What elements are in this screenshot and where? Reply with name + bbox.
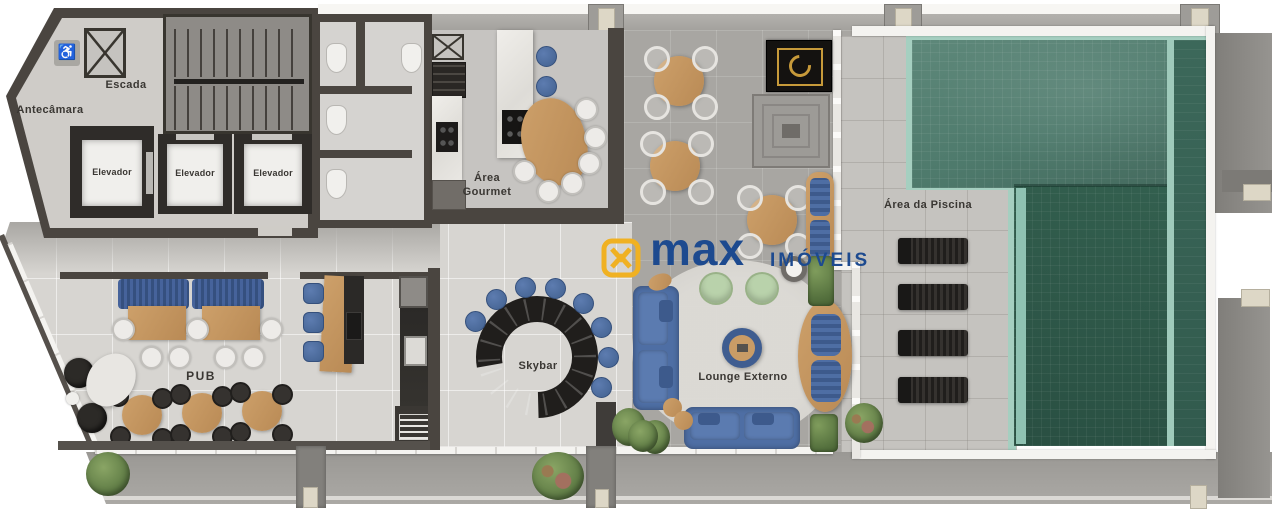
room-label-elevador-1: Elevador [70, 167, 154, 178]
pub-table-2 [202, 306, 260, 340]
room-label-elevador-3: Elevador [234, 168, 312, 179]
lounge-sofa-horizontal [684, 407, 800, 449]
tt1-chair-a [644, 46, 670, 72]
dish-rack [399, 414, 429, 440]
pool-deck-upper [841, 36, 908, 188]
bar-stool-3 [303, 341, 324, 362]
bathroom-partition-1 [318, 86, 412, 94]
room-label-pub: PUB [176, 369, 226, 384]
room-label-area-da-piscina: Área da Piscina [874, 199, 982, 213]
sofa-v-pillow-2 [659, 366, 673, 388]
pergola-frame [752, 94, 830, 168]
lounge-sofa-vertical [633, 286, 679, 410]
skybar-stool-3 [515, 277, 536, 298]
pool-water-shallow [912, 40, 1206, 188]
daybed-1-pad-a [810, 178, 830, 216]
pool-wall-bottom [852, 450, 1216, 459]
sofa-h-pillow-1 [698, 413, 720, 425]
deck-bush [845, 403, 883, 443]
kitchen-shaft-x [432, 34, 464, 60]
tt1-chair-d [692, 94, 718, 120]
pub-banquette-2 [192, 279, 264, 309]
pool-lap-lane [1174, 40, 1206, 446]
tt2-chair-d [688, 179, 714, 205]
pub-banquette-1 [118, 279, 189, 309]
gourmet-chair-5 [537, 180, 560, 203]
kitchen-wall-bottom [424, 208, 624, 224]
elevator-2-door [176, 134, 214, 140]
skybar-stool-8 [591, 377, 612, 398]
balcony-bush [532, 452, 584, 500]
gourmet-chair-1 [575, 98, 598, 121]
pub-chair-7 [260, 318, 283, 341]
oven-stack [432, 62, 466, 98]
gourmet-chair-4 [561, 172, 584, 195]
gourmet-chair-3 [578, 152, 601, 175]
bathroom-partition-3 [356, 22, 365, 88]
sofa-h-pillow-2 [752, 413, 774, 425]
shaft-x [84, 28, 126, 78]
accessibility-plate: ♿ [54, 40, 80, 66]
bottom-band-edge [66, 496, 1272, 500]
lounger-3-headrest [898, 330, 911, 356]
island-stool-2 [536, 76, 557, 97]
kitchen-shaft-brace [434, 36, 462, 58]
pool-wall-right [1206, 26, 1215, 459]
pub-rt3-chair-b [272, 384, 293, 405]
lounge-corner-bush [628, 420, 658, 452]
max-monogram-icon [601, 238, 641, 278]
coffee-machine [346, 312, 362, 340]
accessibility-icon: ♿ [58, 44, 77, 61]
pub-chair-5 [112, 318, 135, 341]
skybar-stool-4 [545, 278, 566, 299]
pub-rt3-chair-a [230, 382, 251, 403]
pub-bottom-wall [58, 441, 430, 450]
tt2-chair-a [640, 131, 666, 157]
pool-lane-divider [1167, 40, 1174, 446]
lounge-side-table-3 [674, 411, 693, 430]
stair-rail [174, 79, 304, 84]
core-door-opening [258, 226, 292, 236]
pub-rt3-chair-c [230, 422, 251, 443]
toilet-3 [327, 106, 346, 134]
bar-stool-1 [303, 283, 324, 304]
pub-side-table [66, 392, 79, 405]
room-label-skybar: Skybar [508, 360, 568, 374]
brand-logo: max IMÓVEIS [598, 226, 858, 286]
skybar-stool-7 [598, 347, 619, 368]
kitchen-partition-right [608, 28, 624, 224]
pub-table-1 [128, 306, 186, 340]
tt1-chair-b [692, 46, 718, 72]
pool-bottom-post [1190, 485, 1207, 509]
brand-suffix: IMÓVEIS [770, 250, 870, 272]
room-label-antecamara: Antecâmara [2, 104, 98, 118]
pool-wall-top [852, 26, 1214, 36]
lounge-planter-bottom [810, 414, 838, 452]
tt2-chair-b [688, 131, 714, 157]
shaft-x-brace [87, 31, 123, 75]
toilet-2 [402, 44, 421, 72]
toilet-4 [327, 170, 346, 198]
tt3-chair-a [737, 185, 763, 211]
pub-plant [86, 452, 130, 496]
sofa-v-pillow-1 [659, 300, 673, 322]
pub-chair-4 [242, 346, 265, 369]
pool-lounger-4 [898, 377, 968, 403]
right-wing-post-2 [1241, 289, 1270, 307]
pub-top-wall-left [60, 272, 268, 279]
lounger-4-headrest [898, 377, 911, 403]
room-label-elevador-2: Elevador [158, 168, 232, 179]
brand-name: max [650, 229, 745, 269]
right-wing-post-1 [1243, 184, 1271, 201]
room-label-escada: Escada [84, 79, 168, 93]
skybar-stool-1 [465, 311, 486, 332]
stair-room [163, 14, 312, 134]
balcony-stub-1-post [303, 487, 318, 508]
pool-lounger-2 [898, 284, 968, 310]
lounger-2-headrest [898, 284, 911, 310]
room-label-lounge-externo: Lounge Externo [688, 371, 798, 385]
coffee-table-tray [737, 344, 748, 352]
bathroom-partition-2 [318, 150, 412, 158]
bottom-balcony-band [66, 452, 1272, 504]
floor-plan: ♿ [0, 0, 1280, 520]
room-label-area-gourmet: Área Gourmet [452, 172, 522, 200]
kitchen-cooktop [436, 122, 458, 152]
pub-chair-1 [140, 346, 163, 369]
pub-chair-3 [214, 346, 237, 369]
toilet-1 [327, 44, 346, 72]
skybar-stool-5 [573, 293, 594, 314]
pub-chair-6 [186, 318, 209, 341]
pub-fridge [399, 276, 428, 308]
daybed-2-pad-a [811, 314, 841, 356]
lounger-1-headrest [898, 238, 911, 264]
bar-stool-2 [303, 312, 324, 333]
pub-armchair-2 [77, 403, 107, 433]
daybed-2 [798, 300, 852, 412]
pool-lounger-1 [898, 238, 968, 264]
skybar-stool-6 [591, 317, 612, 338]
pool-lounger-3 [898, 330, 968, 356]
pub-rt2-chair-a [170, 384, 191, 405]
island-stool-1 [536, 46, 557, 67]
pub-right-wall [428, 268, 440, 450]
tt1-chair-c [644, 94, 670, 120]
right-wing-wall-lower [1218, 298, 1270, 498]
balcony-stub-2-post [595, 489, 609, 508]
stair-flight-upper [174, 29, 304, 77]
pub-chair-2 [168, 346, 191, 369]
tt2-chair-c [640, 179, 666, 205]
feature-sign [766, 40, 832, 92]
skybar-stool-2 [486, 289, 507, 310]
gourmet-chair-2 [584, 126, 607, 149]
stair-flight-lower [174, 86, 304, 130]
elevator-3-door [252, 134, 292, 140]
pergola-frame-inner-3 [782, 124, 800, 138]
pool-step-shadow [1014, 184, 1167, 187]
pub-sink [404, 336, 427, 366]
pool-ledge [1016, 188, 1026, 444]
lounge-coffee-table [722, 328, 762, 368]
daybed-2-pad-b [811, 360, 841, 402]
